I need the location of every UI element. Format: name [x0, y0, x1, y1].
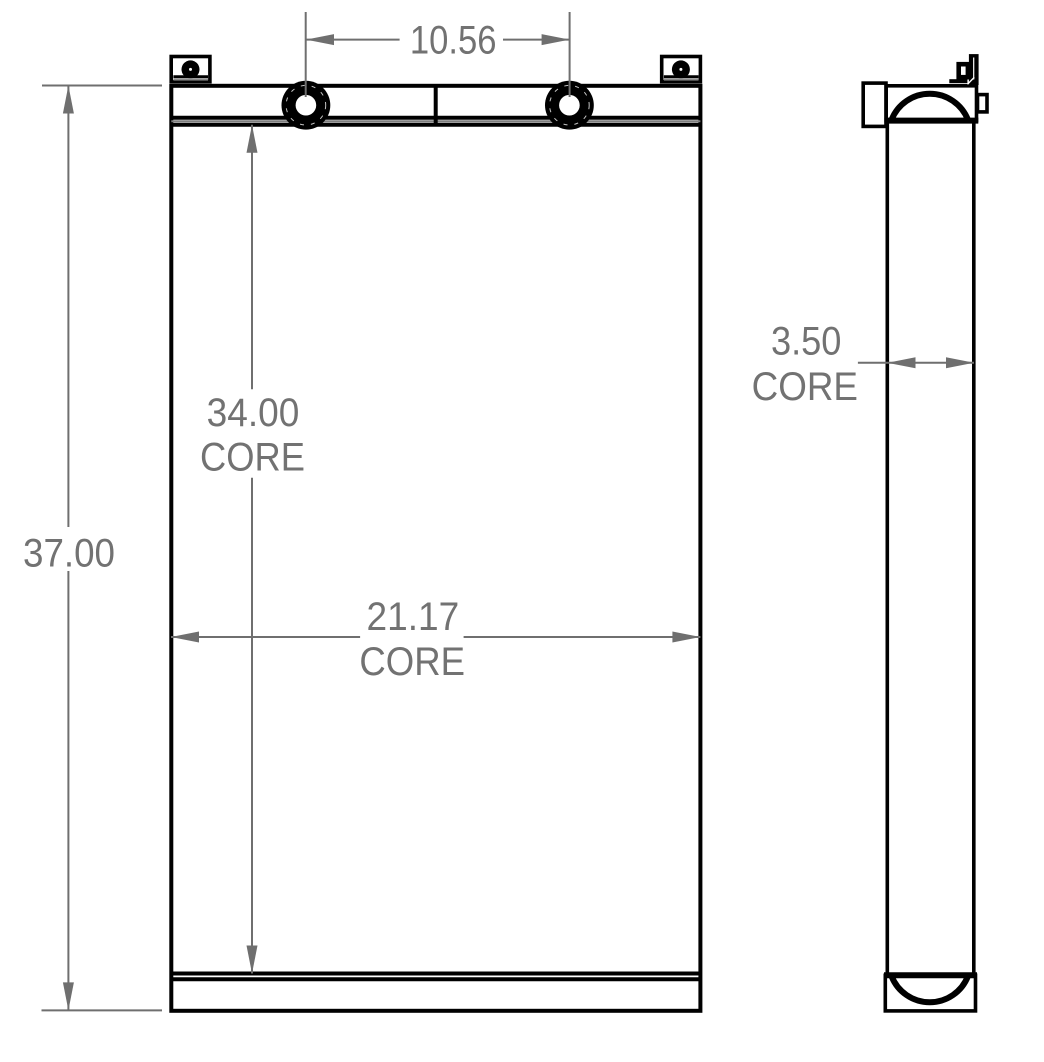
svg-text:3.50: 3.50: [771, 320, 842, 364]
svg-text:CORE: CORE: [359, 640, 465, 684]
svg-text:10.56: 10.56: [410, 19, 497, 63]
svg-text:CORE: CORE: [752, 365, 858, 409]
svg-text:34.00: 34.00: [207, 391, 300, 435]
svg-text:CORE: CORE: [200, 436, 305, 480]
svg-text:21.17: 21.17: [367, 595, 460, 639]
svg-text:37.00: 37.00: [23, 532, 115, 576]
